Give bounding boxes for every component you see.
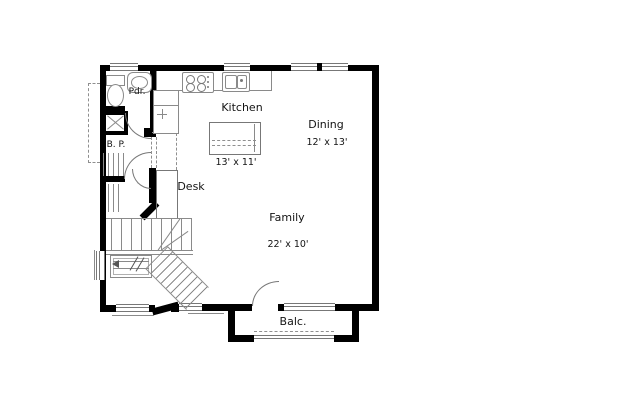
stair-right-line [191,219,192,250]
bp-shelving [103,153,126,176]
right-exterior-wall [372,65,379,311]
sink-bowl-left [225,75,237,89]
balcony-railing [254,335,334,342]
counter-align-dash [176,133,177,170]
burner-icon [186,83,195,92]
sink-bowl-right [237,75,247,89]
bp-label: B. P. [107,140,126,150]
family-dims: 22' x 10' [267,239,308,250]
south-trim-line [188,313,224,314]
overhang-dash-side [88,83,89,163]
faucet-icon [240,79,243,82]
stair-direction-arrowhead [112,260,119,268]
balcony-bottom-wall-right [334,335,359,342]
powder-door-swing [125,113,151,139]
balcony-railing-dash [254,331,334,332]
desk-label: Desk [177,180,204,193]
stair-lower-run-diagonal [145,246,209,310]
refrigerator-divider [154,105,178,106]
dining-window-right [321,63,348,71]
stair-upper-run-treads [111,219,190,251]
hall-opening-dash-2 [156,137,157,168]
range-knob-icon [207,76,209,78]
range-knob-icon [207,81,209,83]
bay-window-sill [112,315,154,316]
kitchen-island [209,122,261,155]
stair-window-sill [94,250,95,280]
island-eating-bar-dash-1 [212,140,256,141]
kitchen-counter [156,71,272,91]
family-label: Family [269,211,304,224]
family-bottom-wall-right [335,304,379,311]
powder-window [110,63,138,71]
floor-plan-canvas: Pdr. B. P. Kitchen 13' x 11' Dining 12' … [0,0,620,415]
overhang-dash-top [88,83,100,84]
burner-icon [197,83,206,92]
family-bottom-wall-left [202,304,252,311]
kitchen-label: Kitchen [221,101,262,114]
island-end-line [254,124,255,152]
hall-door-swing [132,169,151,189]
refrigerator-icon [153,90,179,134]
hall-opening-dash-1 [151,137,152,168]
toilet-bowl-icon [107,84,124,107]
bay-corner-wall [171,304,179,312]
balcony-bottom-wall-left [228,335,254,342]
balcony-door-swing [252,281,279,306]
family-slider-window [284,303,335,311]
dining-label: Dining [308,118,344,131]
kitchen-dims: 13' x 11' [215,157,256,168]
refrigerator-mark-v [162,109,163,119]
bp-bottom-wall [100,176,125,182]
kitchen-sink-icon [222,72,250,92]
island-eating-bar-dash-2 [212,145,256,146]
hall-closet-shelving [108,184,122,212]
overhang-dash-bottom [88,162,100,163]
range-knob-icon [207,86,209,88]
balcony-label: Balc. [280,315,307,328]
dining-window-left [291,63,318,71]
stair-bay-side-window [96,251,105,280]
dining-dims: 12' x 13' [306,137,347,148]
desk-counter [156,170,178,219]
powder-label: Pdr. [129,87,146,97]
dining-window-mullion [317,63,322,71]
kitchen-sink-window [224,63,250,71]
stair-bay-front-window [116,304,149,312]
range-icon [182,72,214,93]
